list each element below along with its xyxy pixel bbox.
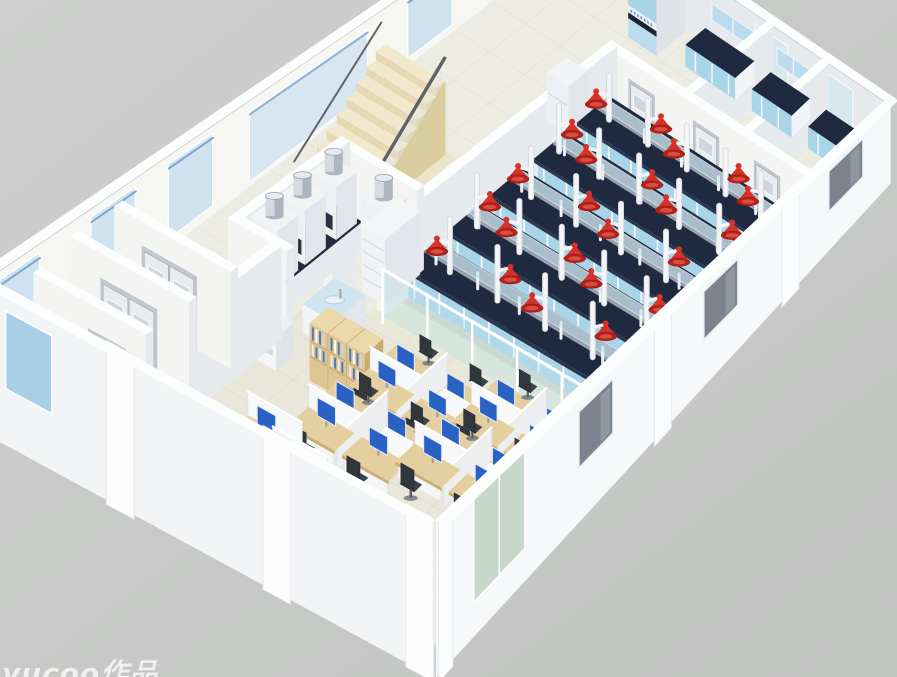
floorplan-3d-scene [0,0,897,677]
watermark-text: yucoo作品 [2,652,158,677]
render-viewport: yucoo作品 [0,0,897,677]
